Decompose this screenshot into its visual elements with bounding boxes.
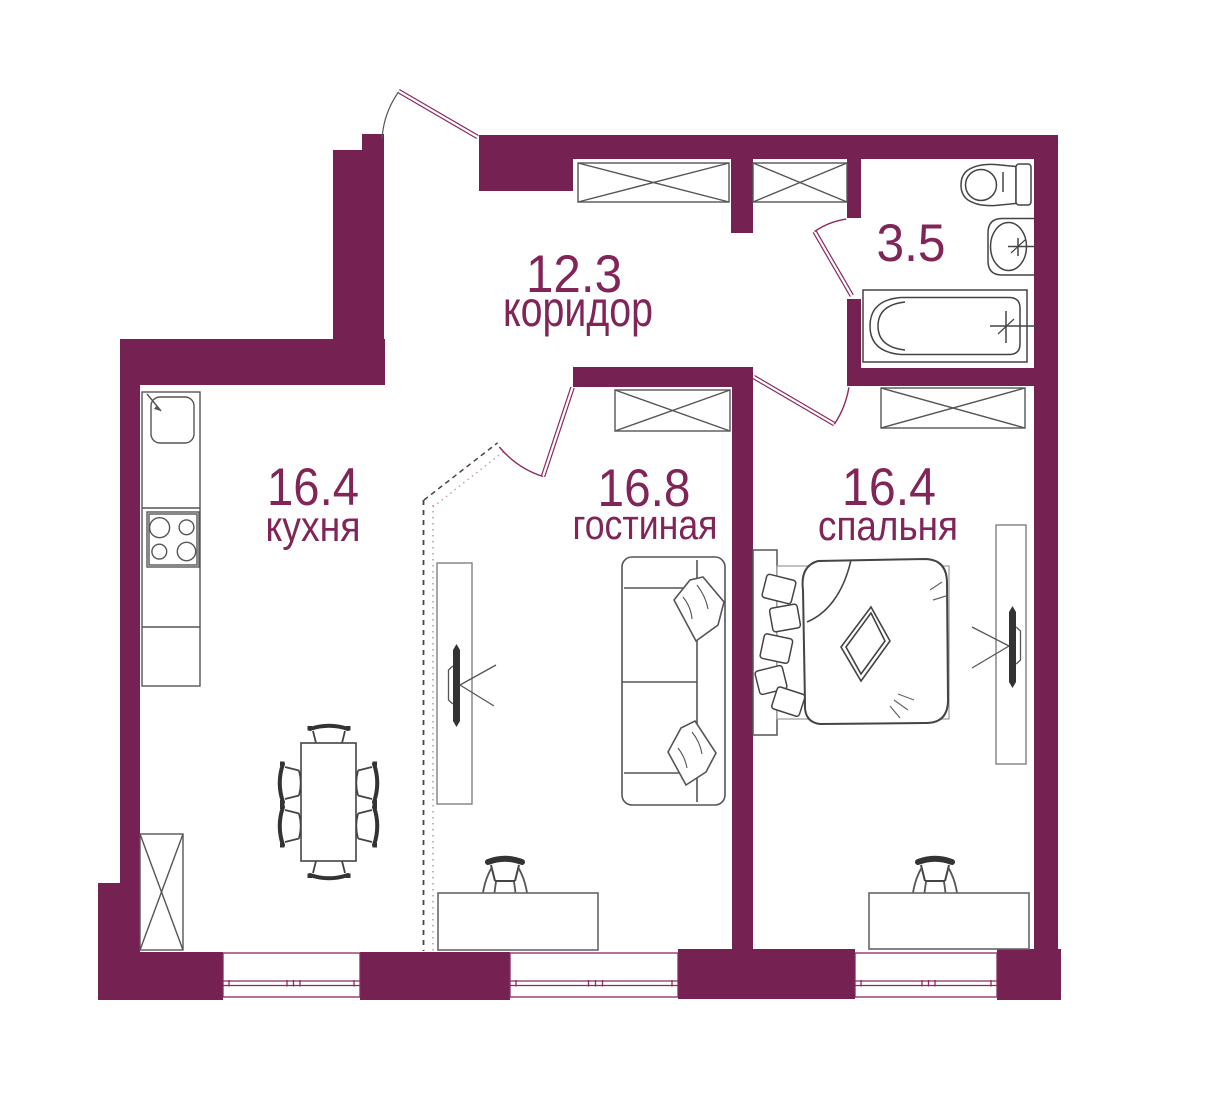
svg-text:3.5: 3.5 bbox=[877, 214, 946, 273]
svg-text:гостиная: гостиная bbox=[573, 501, 718, 548]
svg-text:коридор: коридор bbox=[503, 281, 653, 337]
svg-text:кухня: кухня bbox=[266, 503, 361, 551]
svg-text:спальня: спальня bbox=[818, 502, 958, 549]
